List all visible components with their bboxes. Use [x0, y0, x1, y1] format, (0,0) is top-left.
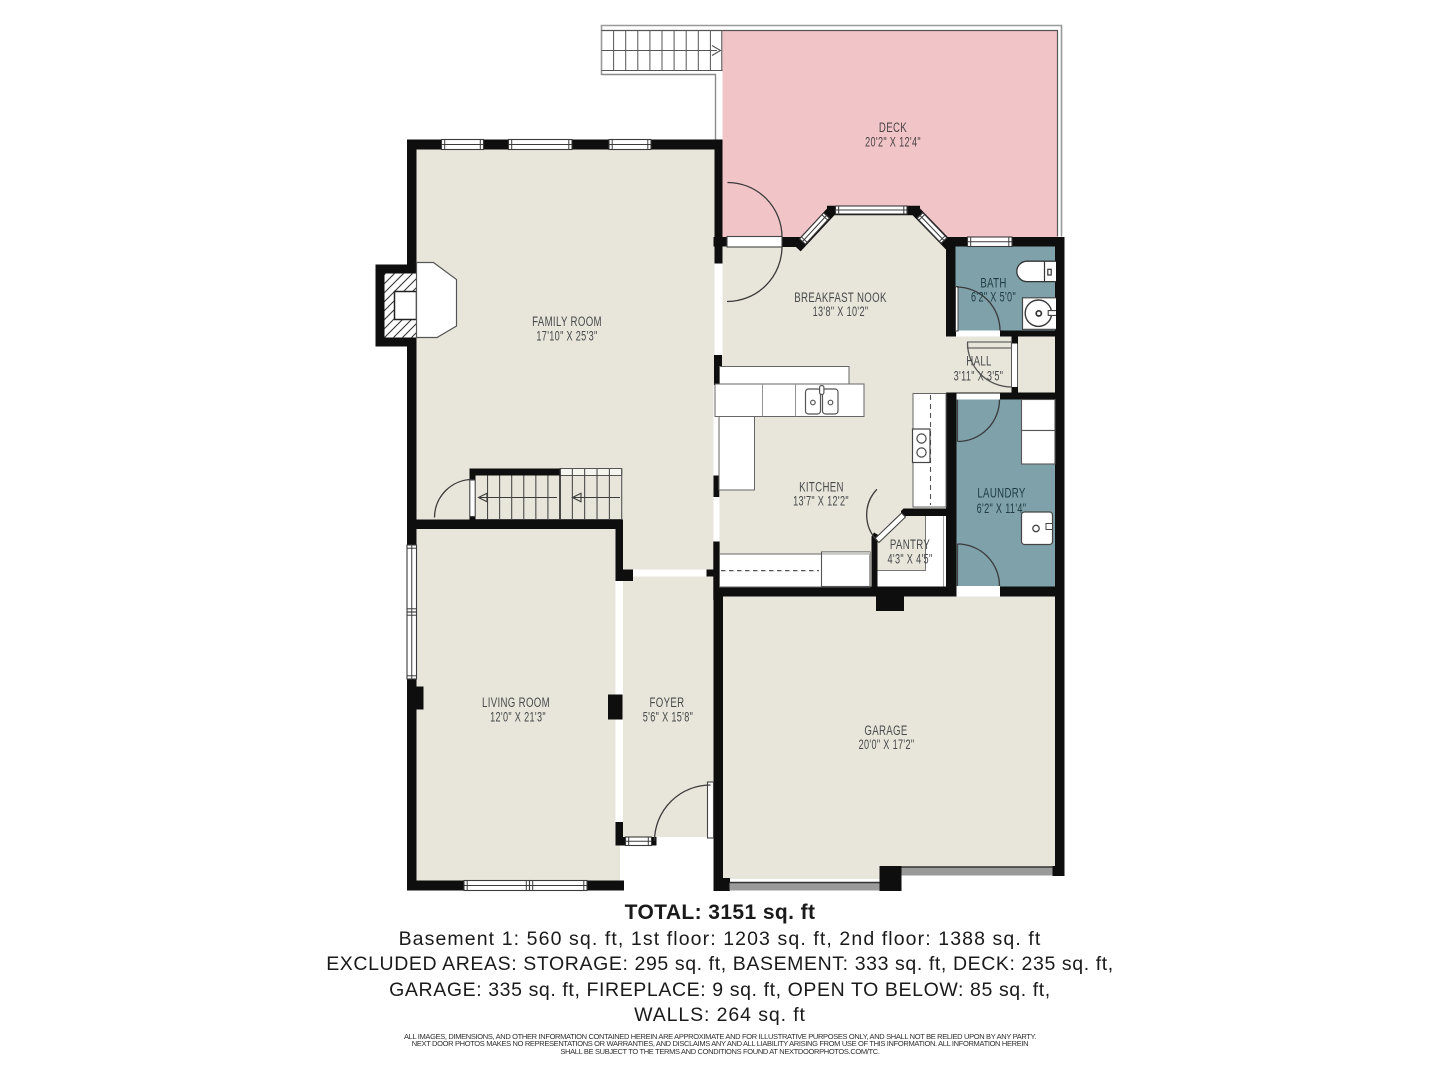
svg-text:3'11" X 3'5": 3'11" X 3'5" — [954, 370, 1004, 384]
svg-text:HALL: HALL — [966, 353, 991, 369]
svg-text:FAMILY ROOM: FAMILY ROOM — [532, 313, 602, 329]
svg-text:LIVING ROOM: LIVING ROOM — [482, 694, 550, 710]
svg-text:BREAKFAST NOOK: BREAKFAST NOOK — [794, 289, 886, 305]
svg-text:BATH: BATH — [980, 275, 1006, 291]
svg-text:FOYER: FOYER — [650, 694, 685, 710]
svg-text:GARAGE: GARAGE — [864, 722, 907, 738]
svg-text:KITCHEN: KITCHEN — [799, 479, 844, 495]
svg-text:13'7" X 12'2": 13'7" X 12'2" — [793, 495, 849, 509]
svg-text:20'0" X 17'2": 20'0" X 17'2" — [859, 738, 915, 752]
svg-text:12'0" X 21'3": 12'0" X 21'3" — [490, 711, 546, 725]
svg-text:4'3" X 4'5": 4'3" X 4'5" — [887, 553, 932, 567]
svg-text:20'2" X 12'4": 20'2" X 12'4" — [865, 136, 921, 150]
svg-text:DECK: DECK — [879, 119, 907, 135]
svg-text:LAUNDRY: LAUNDRY — [977, 485, 1025, 501]
svg-text:17'10" X 25'3": 17'10" X 25'3" — [536, 330, 597, 344]
svg-text:6'2" X 11'4": 6'2" X 11'4" — [977, 503, 1027, 517]
svg-text:PANTRY: PANTRY — [890, 536, 930, 552]
svg-text:6'2" X 5'0": 6'2" X 5'0" — [971, 291, 1016, 305]
svg-text:13'8" X 10'2": 13'8" X 10'2" — [813, 306, 869, 320]
svg-text:5'6" X 15'8": 5'6" X 15'8" — [643, 711, 693, 725]
